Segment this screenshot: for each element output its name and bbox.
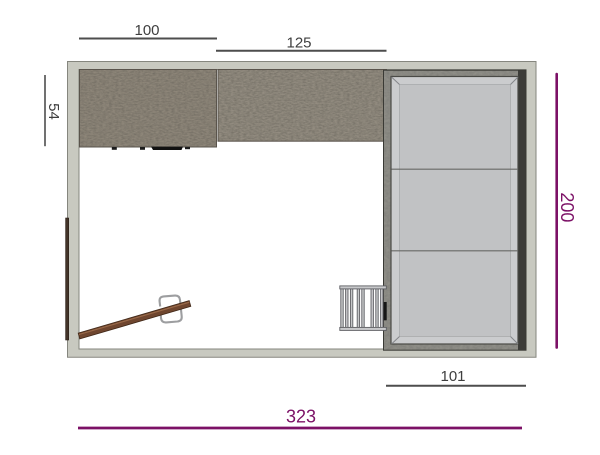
svg-text:100: 100 [134, 22, 159, 39]
svg-text:54: 54 [45, 103, 62, 120]
svg-text:125: 125 [286, 35, 311, 52]
svg-text:200: 200 [557, 192, 577, 222]
svg-text:323: 323 [286, 407, 316, 427]
svg-text:101: 101 [440, 368, 465, 385]
